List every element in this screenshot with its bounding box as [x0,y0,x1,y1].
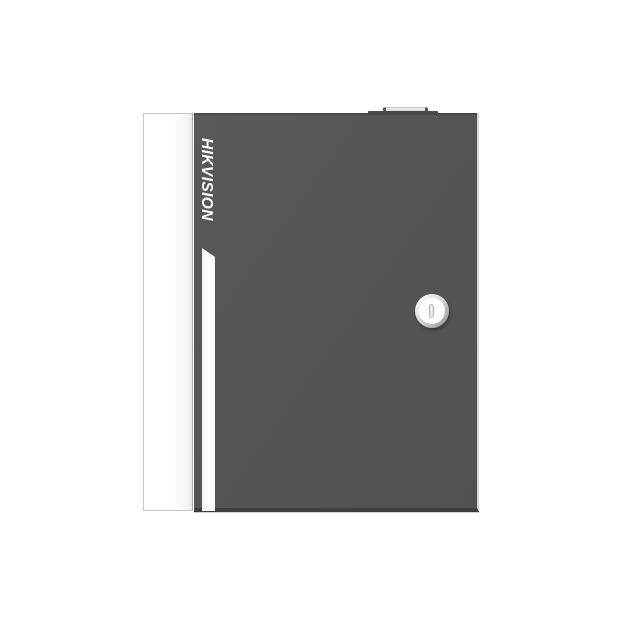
lock-face [419,298,445,324]
hikvision-logo: HIKVISION [197,138,215,226]
access-controller-enclosure: HIKVISION [143,107,479,513]
door-key-lock [415,294,449,328]
enclosure-side-panel [143,113,193,511]
product-photo-canvas: HIKVISION [0,0,620,620]
door-accent-stripe [202,248,215,511]
keyhole-icon [429,304,434,318]
